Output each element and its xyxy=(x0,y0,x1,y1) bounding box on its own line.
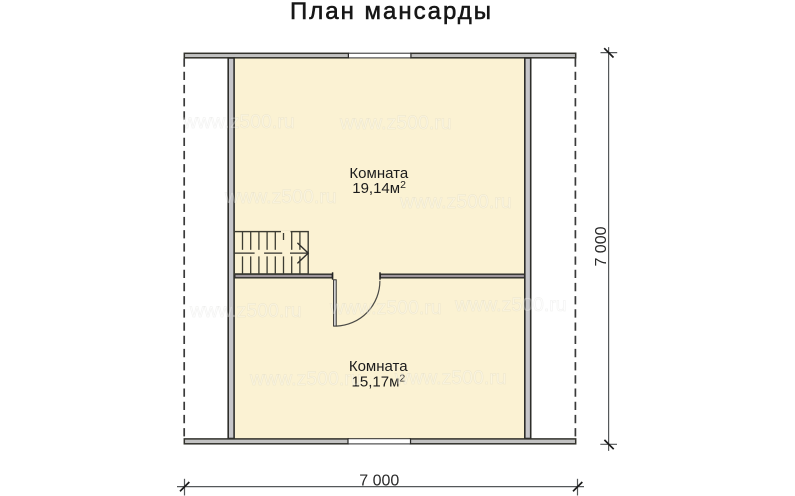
svg-text:www.z500.ru: www.z500.ru xyxy=(454,294,567,316)
svg-text:19,14м2: 19,14м2 xyxy=(352,179,406,197)
svg-text:www.z500.ru: www.z500.ru xyxy=(189,300,302,322)
svg-text:План мансарды: План мансарды xyxy=(290,0,493,25)
svg-text:www.z500.ru: www.z500.ru xyxy=(399,191,512,213)
svg-text:www.z500.ru: www.z500.ru xyxy=(182,111,295,133)
svg-text:7 000: 7 000 xyxy=(359,472,399,489)
svg-text:www.z500.ru: www.z500.ru xyxy=(249,368,362,390)
svg-text:www.z500.ru: www.z500.ru xyxy=(329,297,442,319)
svg-text:www.z500.ru: www.z500.ru xyxy=(339,112,452,134)
svg-text:7 000: 7 000 xyxy=(593,226,610,266)
svg-text:www.z500.ru: www.z500.ru xyxy=(394,367,507,389)
svg-text:www.z500.ru: www.z500.ru xyxy=(224,186,337,208)
